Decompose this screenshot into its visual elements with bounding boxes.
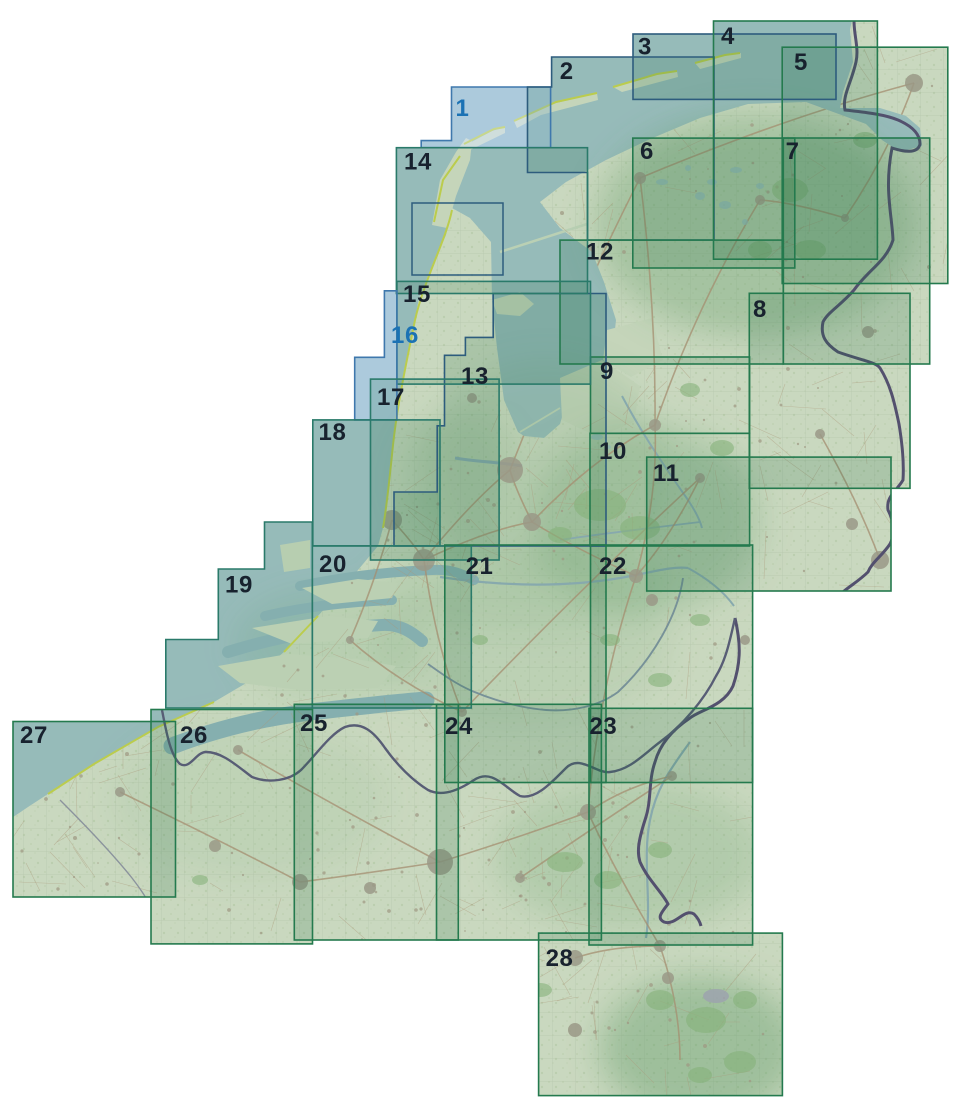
svg-text:21: 21 [466, 553, 494, 580]
svg-text:17: 17 [377, 384, 405, 411]
svg-text:27: 27 [20, 722, 48, 749]
svg-text:19: 19 [225, 572, 253, 599]
svg-text:14: 14 [404, 149, 432, 176]
svg-text:18: 18 [319, 419, 347, 446]
svg-text:9: 9 [600, 358, 614, 385]
svg-text:8: 8 [753, 296, 767, 323]
svg-text:7: 7 [786, 138, 800, 165]
svg-text:3: 3 [638, 34, 652, 61]
svg-text:10: 10 [599, 438, 627, 465]
svg-text:2: 2 [560, 58, 574, 85]
svg-text:13: 13 [461, 363, 489, 390]
svg-text:6: 6 [640, 138, 654, 165]
svg-text:16: 16 [391, 322, 419, 349]
svg-text:12: 12 [586, 239, 614, 266]
svg-text:22: 22 [599, 553, 627, 580]
svg-text:1: 1 [456, 95, 470, 122]
svg-text:5: 5 [794, 49, 808, 76]
svg-text:24: 24 [445, 713, 473, 740]
svg-text:23: 23 [589, 713, 617, 740]
svg-text:15: 15 [403, 281, 431, 308]
svg-text:11: 11 [653, 460, 680, 487]
svg-text:28: 28 [546, 945, 574, 972]
svg-text:26: 26 [180, 722, 208, 749]
svg-text:25: 25 [300, 710, 328, 737]
svg-text:20: 20 [319, 551, 347, 578]
svg-text:4: 4 [721, 23, 735, 50]
